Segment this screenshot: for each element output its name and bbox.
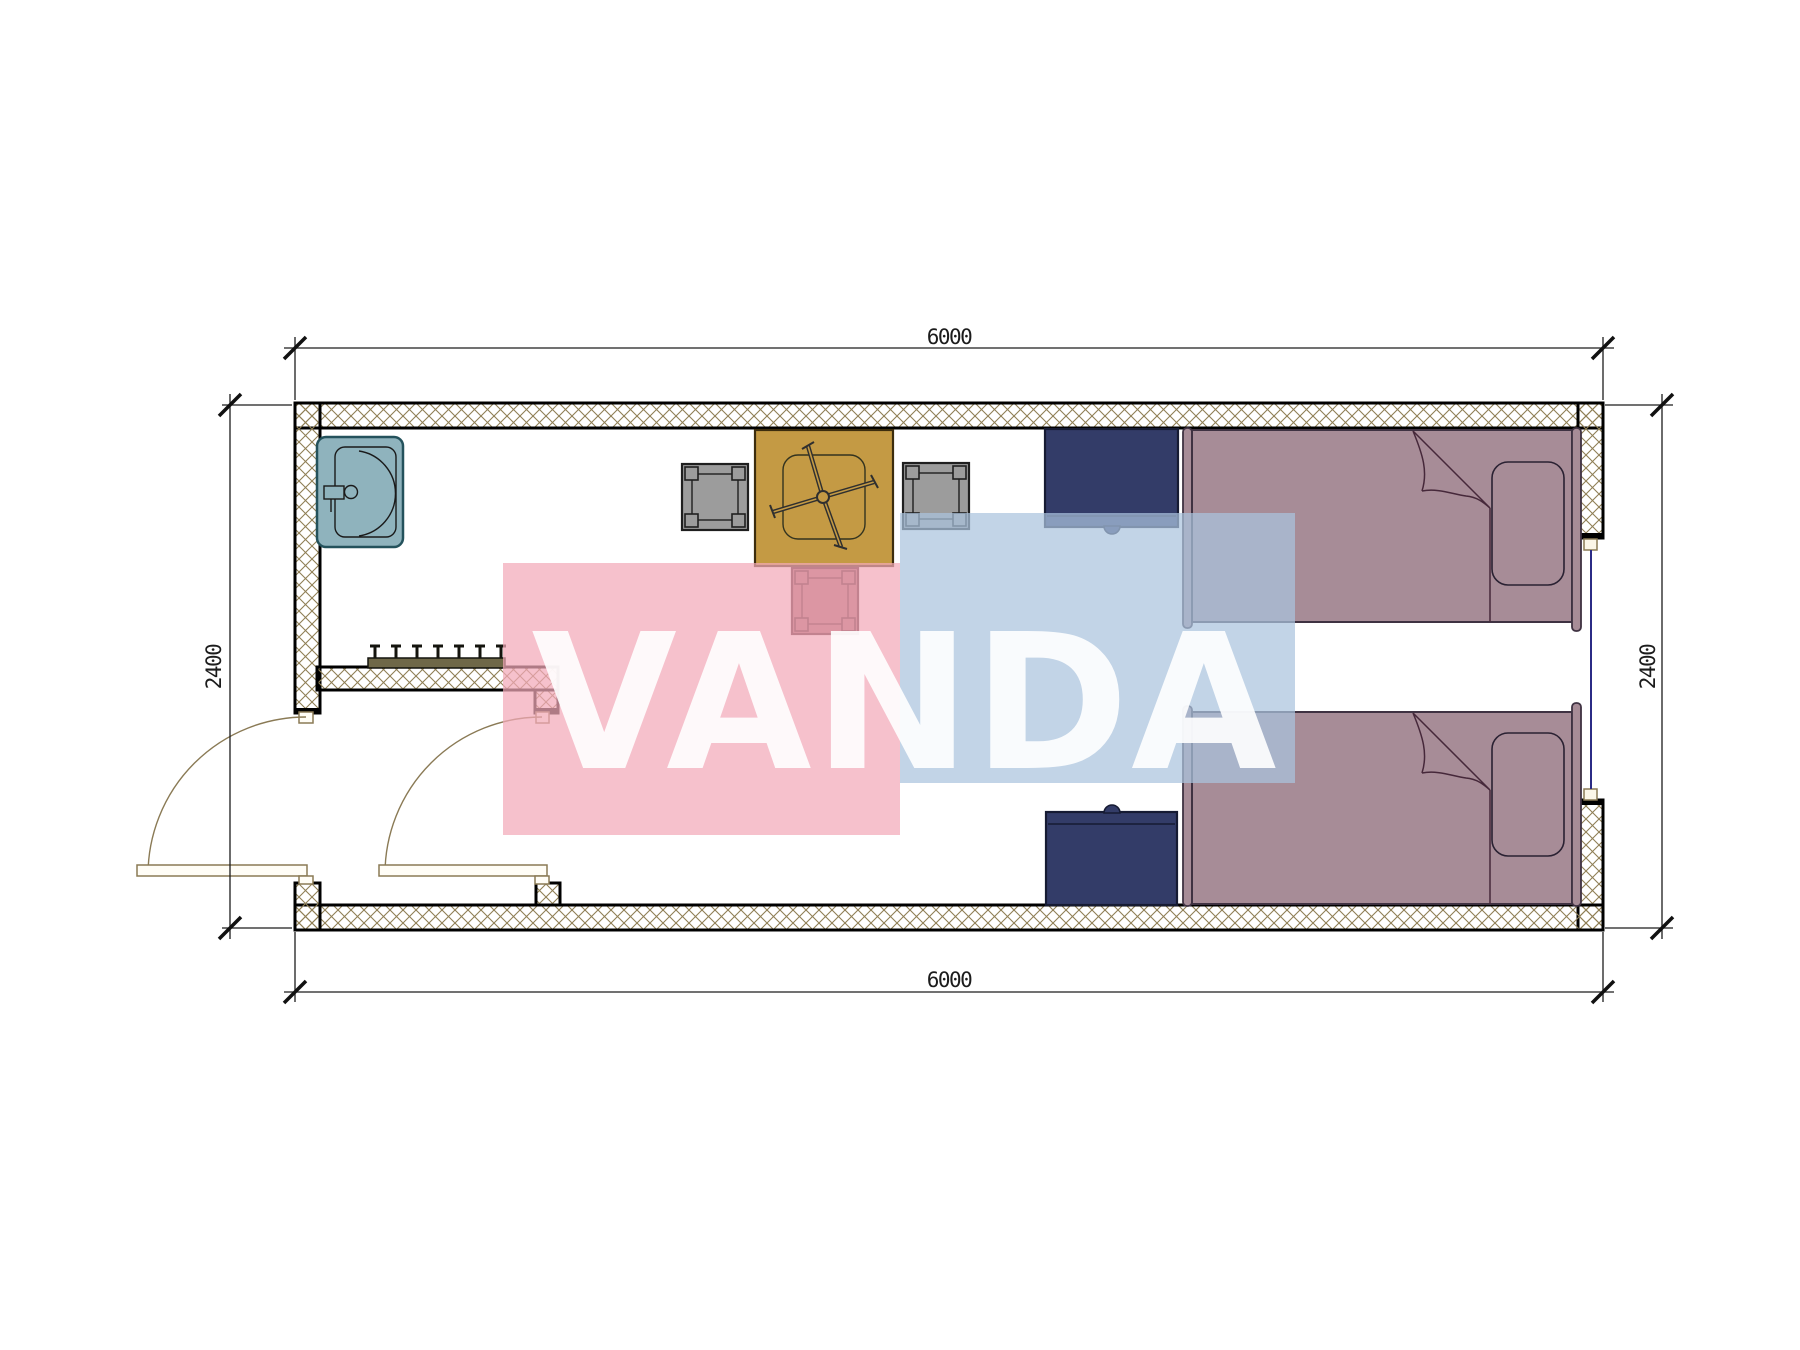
bed-bottom-footboard [1572, 703, 1581, 906]
bed-bottom-pillow [1492, 733, 1564, 856]
door-left-hinge-step [299, 876, 313, 884]
window-right [1584, 539, 1597, 800]
chair-right-post [953, 466, 966, 479]
window-jamb-bottom [1584, 789, 1597, 800]
floor-plan-canvas: 6000 6000 2400 2400 VANDA [0, 0, 1800, 1350]
coat-rack-bar [368, 658, 505, 668]
sink-faucet-knob [345, 486, 358, 499]
bed-top-footboard [1572, 428, 1581, 631]
chair-right-post [906, 466, 919, 479]
nightstand-bottom-body [1046, 812, 1177, 905]
wall-corner-jamb-bottom-left [295, 883, 320, 930]
chair-left-post [732, 514, 745, 527]
window-jamb-top [1584, 539, 1597, 550]
sink-faucet [324, 486, 344, 499]
chair-left-post [685, 467, 698, 480]
fan-hub [817, 491, 829, 503]
dim-label-left: 2400 [202, 644, 226, 689]
chair-left-post [685, 514, 698, 527]
coat-rack-hooks [370, 646, 506, 658]
wall-top [295, 403, 1603, 428]
sink [317, 437, 403, 547]
door-inner-leaf [379, 865, 547, 876]
doors [137, 712, 549, 884]
nightstand-top-body [1045, 429, 1178, 527]
dim-label-right: 2400 [1636, 644, 1660, 689]
dim-label-top: 6000 [927, 325, 972, 349]
coat-rack [368, 646, 506, 668]
door-left-swing-arc [148, 717, 306, 875]
watermark: VANDA [503, 513, 1295, 835]
wall-door-jamb-bottom [536, 883, 560, 905]
wall-bottom [295, 905, 1603, 930]
door-left-leaf [137, 865, 307, 876]
bed-top-pillow [1492, 462, 1564, 585]
door-inner-hinge-step [535, 876, 549, 884]
dim-label-bottom: 6000 [927, 968, 972, 992]
watermark-text: VANDA [531, 594, 1278, 813]
chair-left [682, 464, 748, 530]
chair-left-post [732, 467, 745, 480]
table-group [755, 430, 893, 566]
nightstand-bottom [1046, 805, 1177, 905]
